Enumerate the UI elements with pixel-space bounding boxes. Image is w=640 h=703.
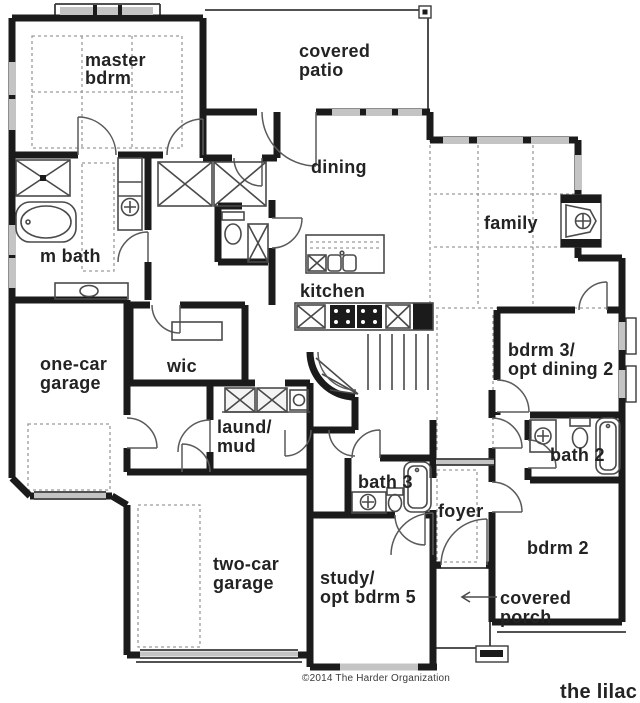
fixtures <box>16 158 620 513</box>
plan-title: the lilac <box>560 681 637 703</box>
shower-icon <box>16 160 70 196</box>
room-label-bdrm3-2: opt dining 2 <box>508 359 614 379</box>
linen-closet-icon <box>248 224 268 262</box>
staircase <box>316 334 428 394</box>
room-label-covered-porch-2: porch <box>500 607 552 627</box>
kitchen-island-icon <box>306 235 384 273</box>
fireplace-icon <box>561 195 601 247</box>
room-label-family: family <box>484 213 538 233</box>
room-label-master-bdrm-2: bdrm <box>85 68 131 88</box>
room-label-master-bdrm: master <box>85 50 146 70</box>
room-label-foyer: foyer <box>438 501 484 521</box>
room-label-one-car-garage-2: garage <box>40 373 101 393</box>
room-label-bath3: bath 3 <box>358 472 413 492</box>
room-label-covered-patio: covered <box>299 41 370 61</box>
floor-plan-page: master bdrm covered patio dining family … <box>0 0 640 703</box>
copyright-text: ©2014 The Harder Organization <box>302 673 450 684</box>
bathtub-icon <box>16 202 76 242</box>
floor-plan-drawing: master bdrm covered patio dining family … <box>0 0 640 703</box>
vanity-sink-icon <box>118 158 142 230</box>
room-label-wic: wic <box>166 356 197 376</box>
room-label-bdrm3: bdrm 3/ <box>508 340 575 360</box>
room-label-two-car-garage-2: garage <box>213 573 274 593</box>
room-label-study: study/ <box>320 568 375 588</box>
room-label-study-2: opt bdrm 5 <box>320 587 416 607</box>
room-label-laund-mud: laund/ <box>217 417 272 437</box>
room-label-bath2: bath 2 <box>550 445 605 465</box>
room-label-dining: dining <box>311 157 367 177</box>
room-label-laund-mud-2: mud <box>217 436 256 456</box>
toilet-icon <box>222 212 244 244</box>
washer-dryer-icon <box>222 388 310 412</box>
room-label-bdrm2: bdrm 2 <box>527 538 589 558</box>
kitchen-counter-icon <box>295 303 433 330</box>
room-label-kitchen: kitchen <box>300 281 365 301</box>
kitchen-wall-chunk <box>413 303 433 330</box>
room-label-covered-patio-2: patio <box>299 60 344 80</box>
room-label-one-car-garage: one-car <box>40 354 107 374</box>
room-label-m-bath: m bath <box>40 246 101 266</box>
room-label-two-car-garage: two-car <box>213 554 279 574</box>
room-label-covered-porch: covered <box>500 588 571 608</box>
